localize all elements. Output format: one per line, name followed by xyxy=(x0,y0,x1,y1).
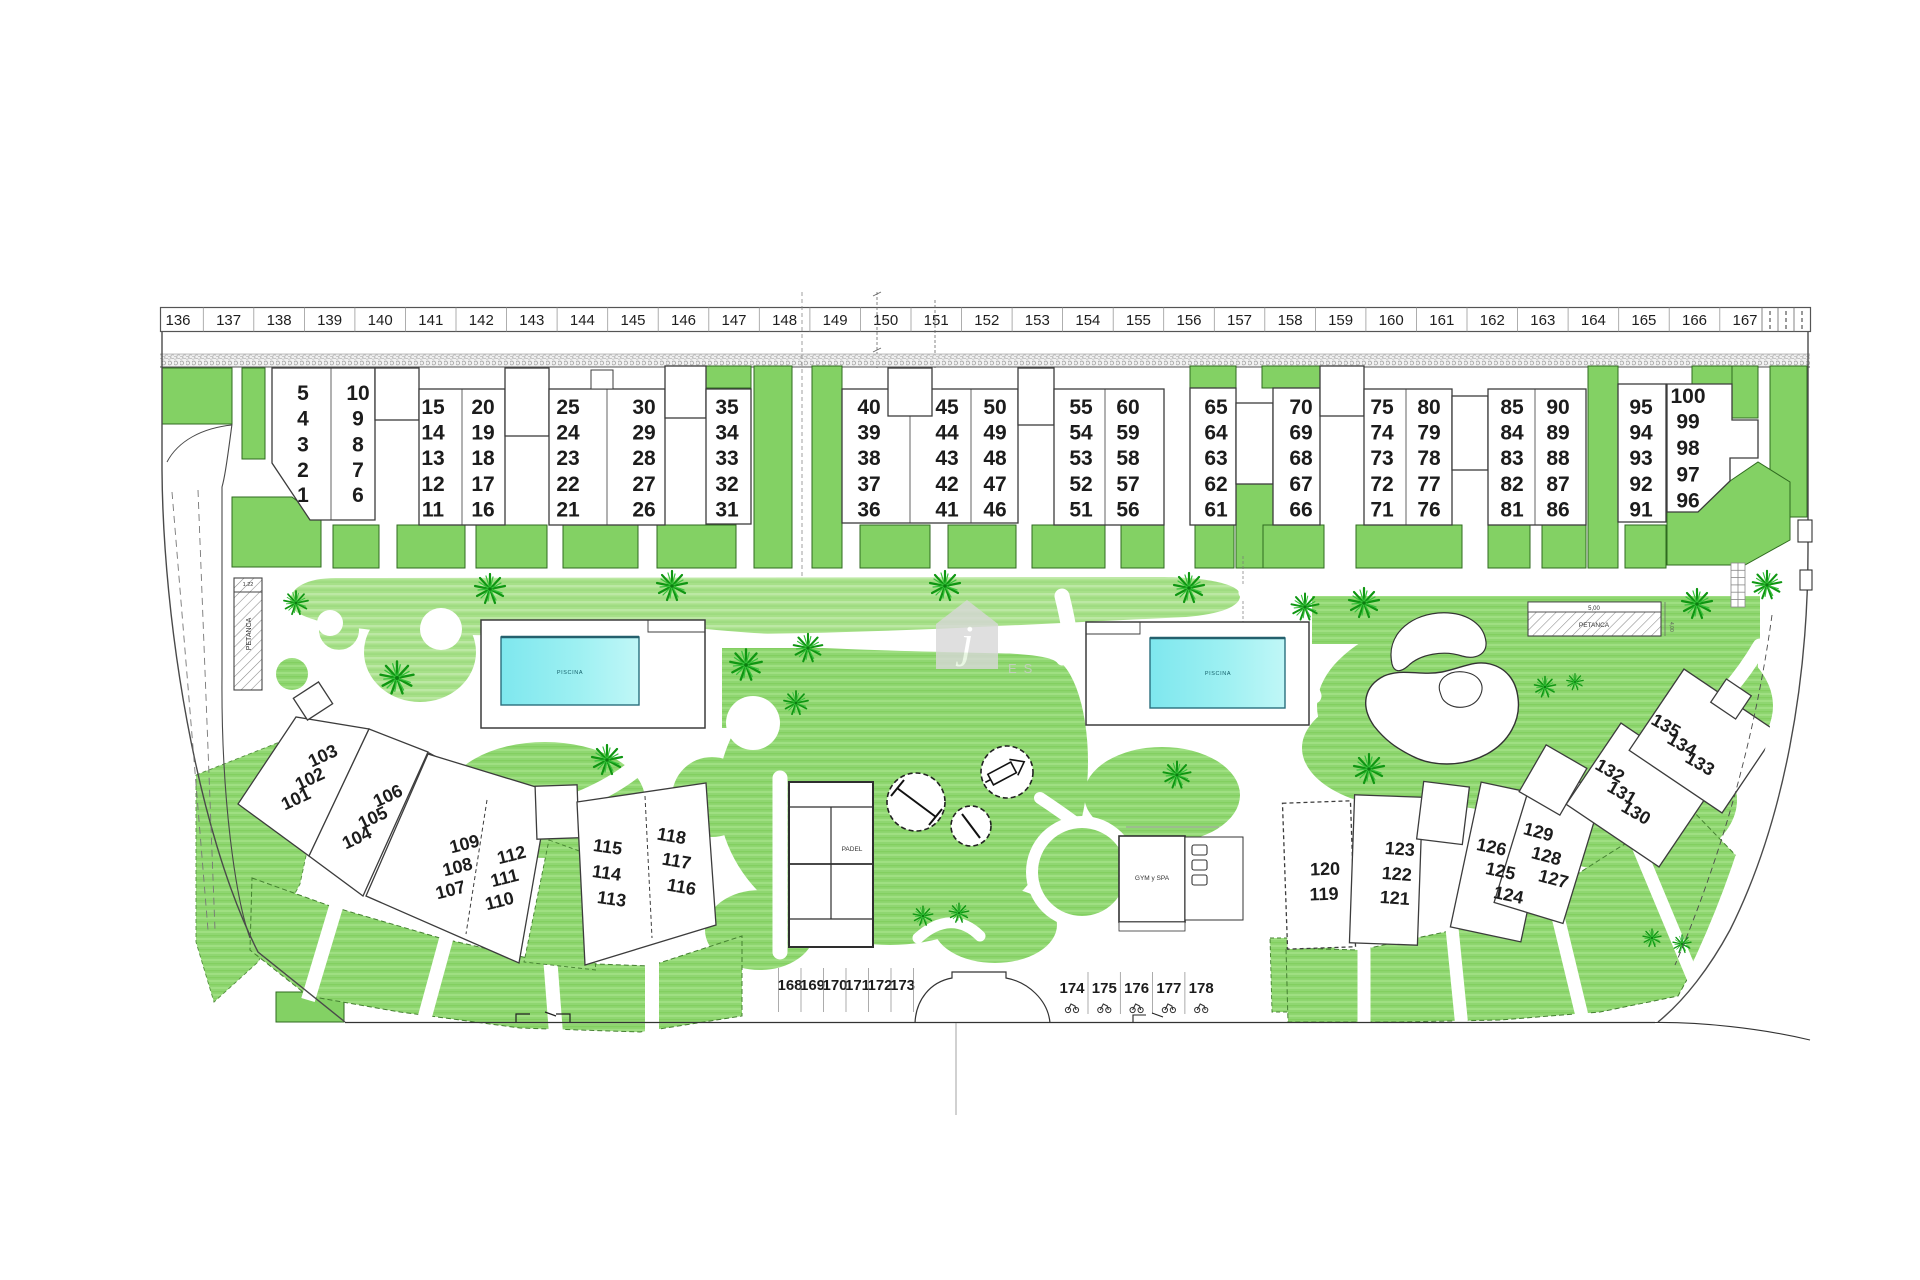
svg-text:160: 160 xyxy=(1379,312,1404,329)
svg-text:37: 37 xyxy=(857,473,880,496)
svg-text:94: 94 xyxy=(1629,422,1653,445)
svg-text:64: 64 xyxy=(1204,422,1228,445)
svg-text:43: 43 xyxy=(935,447,958,470)
svg-text:155: 155 xyxy=(1126,312,1151,329)
svg-text:119: 119 xyxy=(1309,883,1339,904)
svg-text:29: 29 xyxy=(632,422,655,445)
svg-text:4: 4 xyxy=(297,408,309,431)
svg-text:20: 20 xyxy=(471,396,494,419)
svg-text:53: 53 xyxy=(1069,447,1092,470)
svg-text:55: 55 xyxy=(1069,396,1093,419)
svg-text:98: 98 xyxy=(1676,437,1700,460)
svg-text:80: 80 xyxy=(1417,396,1440,419)
svg-text:167: 167 xyxy=(1732,312,1757,329)
svg-text:153: 153 xyxy=(1025,312,1050,329)
svg-text:10: 10 xyxy=(346,382,369,405)
svg-text:177: 177 xyxy=(1156,980,1181,997)
svg-text:49: 49 xyxy=(983,422,1006,445)
svg-text:123: 123 xyxy=(1384,838,1415,860)
svg-text:39: 39 xyxy=(857,422,880,445)
svg-text:71: 71 xyxy=(1370,499,1394,522)
svg-text:175: 175 xyxy=(1092,980,1117,997)
svg-text:27: 27 xyxy=(632,473,655,496)
svg-text:165: 165 xyxy=(1631,312,1656,329)
svg-text:138: 138 xyxy=(267,312,292,329)
svg-text:176: 176 xyxy=(1124,980,1149,997)
svg-text:54: 54 xyxy=(1069,422,1093,445)
svg-text:35: 35 xyxy=(715,396,739,419)
svg-text:148: 148 xyxy=(772,312,797,329)
svg-text:45: 45 xyxy=(935,396,959,419)
svg-text:34: 34 xyxy=(715,422,739,445)
svg-text:95: 95 xyxy=(1629,396,1653,419)
svg-text:22: 22 xyxy=(556,473,579,496)
svg-text:161: 161 xyxy=(1429,312,1454,329)
svg-text:60: 60 xyxy=(1116,396,1139,419)
svg-text:152: 152 xyxy=(974,312,999,329)
svg-text:59: 59 xyxy=(1116,422,1139,445)
svg-text:147: 147 xyxy=(721,312,746,329)
svg-text:66: 66 xyxy=(1289,499,1312,522)
svg-text:143: 143 xyxy=(519,312,544,329)
svg-text:74: 74 xyxy=(1370,422,1394,445)
svg-text:91: 91 xyxy=(1629,499,1653,522)
svg-text:163: 163 xyxy=(1530,312,1555,329)
svg-text:122: 122 xyxy=(1381,863,1412,885)
svg-text:144: 144 xyxy=(570,312,595,329)
svg-text:156: 156 xyxy=(1176,312,1201,329)
svg-text:114: 114 xyxy=(591,861,623,885)
svg-text:25: 25 xyxy=(556,396,580,419)
svg-text:88: 88 xyxy=(1546,447,1570,470)
svg-text:87: 87 xyxy=(1546,473,1569,496)
svg-text:77: 77 xyxy=(1417,473,1440,496)
svg-text:84: 84 xyxy=(1500,422,1524,445)
svg-text:8: 8 xyxy=(352,434,364,457)
svg-text:158: 158 xyxy=(1278,312,1303,329)
svg-text:83: 83 xyxy=(1500,447,1523,470)
svg-text:89: 89 xyxy=(1546,422,1569,445)
svg-text:136: 136 xyxy=(165,312,190,329)
svg-text:170: 170 xyxy=(822,977,847,994)
svg-text:1.22: 1.22 xyxy=(243,582,254,588)
svg-text:33: 33 xyxy=(715,447,738,470)
svg-text:24: 24 xyxy=(556,422,580,445)
svg-text:30: 30 xyxy=(632,396,655,419)
svg-text:75: 75 xyxy=(1370,396,1394,419)
svg-text:PADEL: PADEL xyxy=(842,846,863,853)
svg-text:70: 70 xyxy=(1289,396,1312,419)
svg-text:85: 85 xyxy=(1500,396,1524,419)
svg-text:69: 69 xyxy=(1289,422,1312,445)
svg-text:21: 21 xyxy=(556,499,580,522)
svg-text:137: 137 xyxy=(216,312,241,329)
svg-text:169: 169 xyxy=(800,977,825,994)
svg-text:141: 141 xyxy=(418,312,443,329)
svg-text:121: 121 xyxy=(1379,887,1410,909)
svg-text:92: 92 xyxy=(1629,473,1652,496)
svg-text:115: 115 xyxy=(592,835,624,859)
svg-text:149: 149 xyxy=(823,312,848,329)
svg-text:100: 100 xyxy=(1670,385,1705,408)
svg-text:78: 78 xyxy=(1417,447,1441,470)
svg-text:113: 113 xyxy=(596,887,628,911)
svg-text:159: 159 xyxy=(1328,312,1353,329)
svg-text:62: 62 xyxy=(1204,473,1227,496)
svg-text:61: 61 xyxy=(1204,499,1228,522)
svg-text:7: 7 xyxy=(352,459,364,482)
svg-text:51: 51 xyxy=(1069,499,1093,522)
svg-text:1: 1 xyxy=(297,484,309,507)
svg-text:168: 168 xyxy=(777,977,802,994)
svg-text:178: 178 xyxy=(1189,980,1214,997)
svg-text:17: 17 xyxy=(471,473,494,496)
svg-text:40: 40 xyxy=(857,396,880,419)
svg-text:14: 14 xyxy=(421,422,445,445)
svg-text:GYM y SPA: GYM y SPA xyxy=(1135,875,1170,882)
svg-text:82: 82 xyxy=(1500,473,1523,496)
svg-text:76: 76 xyxy=(1417,499,1440,522)
svg-text:18: 18 xyxy=(471,447,495,470)
svg-text:28: 28 xyxy=(632,447,656,470)
svg-text:4,00: 4,00 xyxy=(1668,622,1674,632)
svg-text:151: 151 xyxy=(924,312,949,329)
svg-text:174: 174 xyxy=(1059,980,1085,997)
svg-text:41: 41 xyxy=(935,499,959,522)
svg-text:63: 63 xyxy=(1204,447,1227,470)
svg-text:13: 13 xyxy=(421,447,444,470)
svg-text:90: 90 xyxy=(1546,396,1569,419)
svg-text:5,00: 5,00 xyxy=(1588,606,1600,612)
svg-text:67: 67 xyxy=(1289,473,1312,496)
svg-text:11: 11 xyxy=(422,499,445,522)
svg-text:PISCINA: PISCINA xyxy=(1205,671,1231,677)
svg-text:PETANCA: PETANCA xyxy=(246,617,253,650)
svg-text:15: 15 xyxy=(421,396,445,419)
svg-text:96: 96 xyxy=(1676,490,1699,513)
svg-text:99: 99 xyxy=(1676,411,1699,434)
svg-text:26: 26 xyxy=(632,499,655,522)
svg-text:50: 50 xyxy=(983,396,1006,419)
svg-text:173: 173 xyxy=(890,977,915,994)
svg-text:31: 31 xyxy=(715,499,739,522)
svg-text:146: 146 xyxy=(671,312,696,329)
svg-text:47: 47 xyxy=(983,473,1006,496)
svg-text:56: 56 xyxy=(1116,499,1139,522)
svg-text:142: 142 xyxy=(469,312,494,329)
svg-text:145: 145 xyxy=(620,312,645,329)
svg-text:38: 38 xyxy=(857,447,881,470)
svg-text:12: 12 xyxy=(421,473,444,496)
svg-text:65: 65 xyxy=(1204,396,1228,419)
svg-text:166: 166 xyxy=(1682,312,1707,329)
svg-text:93: 93 xyxy=(1629,447,1652,470)
svg-text:PETANCA: PETANCA xyxy=(1579,622,1610,629)
svg-text:162: 162 xyxy=(1480,312,1505,329)
svg-text:86: 86 xyxy=(1546,499,1569,522)
svg-text:164: 164 xyxy=(1581,312,1606,329)
svg-text:154: 154 xyxy=(1075,312,1100,329)
svg-text:157: 157 xyxy=(1227,312,1252,329)
svg-text:9: 9 xyxy=(352,408,364,431)
svg-text:172: 172 xyxy=(867,977,892,994)
svg-text:120: 120 xyxy=(1310,858,1341,879)
svg-text:36: 36 xyxy=(857,499,880,522)
svg-text:6: 6 xyxy=(352,484,364,507)
svg-text:5: 5 xyxy=(297,382,309,405)
svg-text:42: 42 xyxy=(935,473,958,496)
svg-text:97: 97 xyxy=(1676,464,1699,487)
svg-text:171: 171 xyxy=(845,977,870,994)
svg-text:72: 72 xyxy=(1370,473,1393,496)
svg-text:2: 2 xyxy=(297,459,309,482)
svg-text:140: 140 xyxy=(368,312,393,329)
svg-text:46: 46 xyxy=(983,499,1006,522)
svg-text:48: 48 xyxy=(983,447,1007,470)
svg-text:81: 81 xyxy=(1500,499,1524,522)
svg-text:139: 139 xyxy=(317,312,342,329)
svg-text:19: 19 xyxy=(471,422,494,445)
svg-text:16: 16 xyxy=(471,499,494,522)
svg-text:68: 68 xyxy=(1289,447,1313,470)
svg-text:58: 58 xyxy=(1116,447,1140,470)
svg-text:32: 32 xyxy=(715,473,738,496)
svg-text:PISCINA: PISCINA xyxy=(557,670,583,676)
svg-text:57: 57 xyxy=(1116,473,1139,496)
svg-text:79: 79 xyxy=(1417,422,1440,445)
svg-text:73: 73 xyxy=(1370,447,1393,470)
svg-text:52: 52 xyxy=(1069,473,1092,496)
svg-text:44: 44 xyxy=(935,422,959,445)
svg-text:23: 23 xyxy=(556,447,579,470)
svg-text:ES: ES xyxy=(1008,661,1039,676)
svg-text:3: 3 xyxy=(297,434,309,457)
